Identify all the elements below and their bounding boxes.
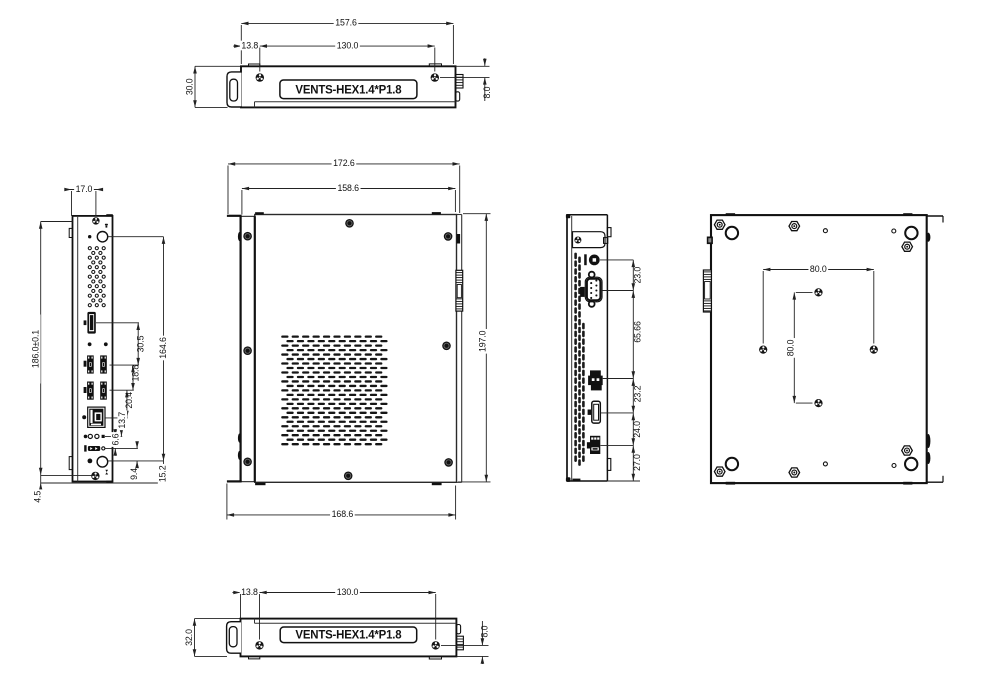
svg-text:186.0±0.1: 186.0±0.1 — [31, 330, 41, 368]
svg-text:15.2: 15.2 — [158, 465, 168, 482]
svg-text:24.0: 24.0 — [632, 421, 642, 438]
svg-text:20.4: 20.4 — [124, 392, 134, 409]
svg-text:13.8: 13.8 — [241, 587, 258, 597]
svg-text:4.5: 4.5 — [33, 491, 43, 503]
svg-text:172.6: 172.6 — [333, 158, 355, 168]
svg-text:VENTS-HEX1.4*P1.8: VENTS-HEX1.4*P1.8 — [295, 82, 401, 96]
svg-text:13.8: 13.8 — [241, 40, 258, 50]
svg-text:168.6: 168.6 — [332, 509, 354, 519]
svg-text:17.0: 17.0 — [76, 184, 93, 194]
svg-text:157.6: 157.6 — [335, 18, 357, 28]
svg-text:23.2: 23.2 — [633, 385, 643, 402]
svg-text:80.0: 80.0 — [786, 339, 796, 356]
svg-text:18.8: 18.8 — [131, 365, 141, 382]
svg-text:164.6: 164.6 — [158, 337, 168, 359]
svg-text:65.66: 65.66 — [633, 321, 643, 343]
svg-text:130.0: 130.0 — [337, 587, 359, 597]
svg-text:197.0: 197.0 — [478, 330, 488, 352]
svg-text:158.6: 158.6 — [337, 183, 359, 193]
svg-text:13.7: 13.7 — [117, 412, 127, 429]
svg-text:9.4: 9.4 — [129, 468, 139, 480]
svg-text:27.0: 27.0 — [632, 454, 642, 471]
svg-text:23.0: 23.0 — [633, 267, 643, 284]
svg-text:32.0: 32.0 — [184, 629, 194, 646]
svg-text:30.0: 30.0 — [185, 78, 195, 95]
svg-text:8.0: 8.0 — [482, 86, 492, 98]
svg-text:8.0: 8.0 — [480, 625, 490, 637]
svg-text:30.5: 30.5 — [136, 335, 146, 352]
svg-text:6.6: 6.6 — [111, 433, 121, 445]
svg-text:80.0: 80.0 — [810, 264, 827, 274]
svg-text:VENTS-HEX1.4*P1.8: VENTS-HEX1.4*P1.8 — [295, 628, 401, 642]
svg-text:130.0: 130.0 — [337, 40, 359, 50]
